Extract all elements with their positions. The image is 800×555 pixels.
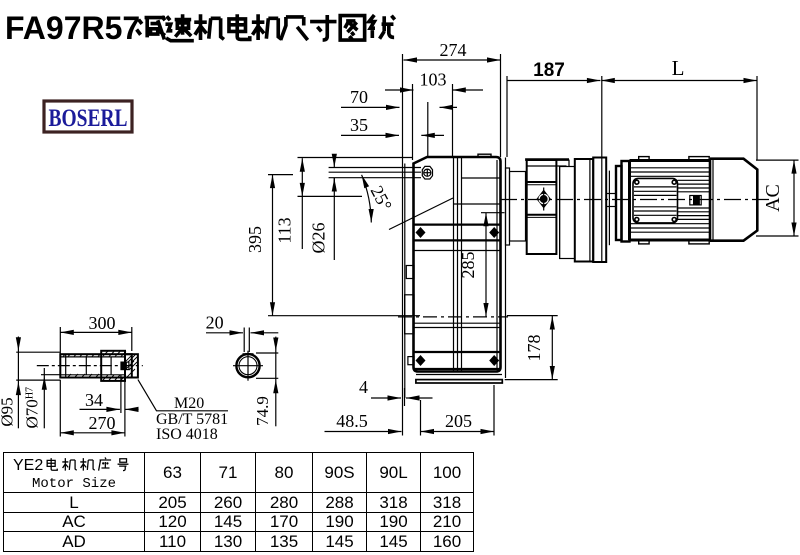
svg-text:Ø70H7: Ø70H7 — [23, 387, 42, 429]
svg-text:BOSERL: BOSERL — [49, 105, 128, 132]
svg-text:L: L — [672, 56, 685, 80]
svg-text:113: 113 — [275, 217, 295, 243]
svg-text:103: 103 — [420, 70, 447, 90]
svg-text:395: 395 — [245, 226, 265, 253]
svg-text:274: 274 — [440, 40, 467, 60]
svg-text:Ø95: Ø95 — [0, 397, 16, 426]
svg-text:AC: AC — [762, 184, 784, 212]
svg-text:70: 70 — [350, 87, 368, 107]
svg-text:48.5: 48.5 — [336, 411, 368, 431]
svg-text:178: 178 — [524, 335, 544, 362]
svg-text:270: 270 — [89, 413, 116, 433]
svg-text:34: 34 — [85, 390, 103, 410]
svg-text:300: 300 — [89, 313, 116, 333]
svg-text:20: 20 — [206, 313, 224, 333]
svg-text:4: 4 — [359, 377, 368, 397]
svg-text:285: 285 — [458, 252, 478, 279]
svg-text:ISO 4018: ISO 4018 — [156, 426, 218, 443]
svg-text:FA97R57: FA97R57 — [5, 10, 140, 46]
svg-text:187: 187 — [533, 60, 565, 81]
svg-text:Ø26: Ø26 — [309, 223, 329, 254]
svg-text:205: 205 — [445, 411, 472, 431]
svg-text:M20: M20 — [174, 395, 204, 412]
svg-text:74.9: 74.9 — [253, 396, 272, 426]
svg-text:YE2: YE2 — [13, 457, 43, 474]
svg-text:35: 35 — [350, 115, 368, 135]
